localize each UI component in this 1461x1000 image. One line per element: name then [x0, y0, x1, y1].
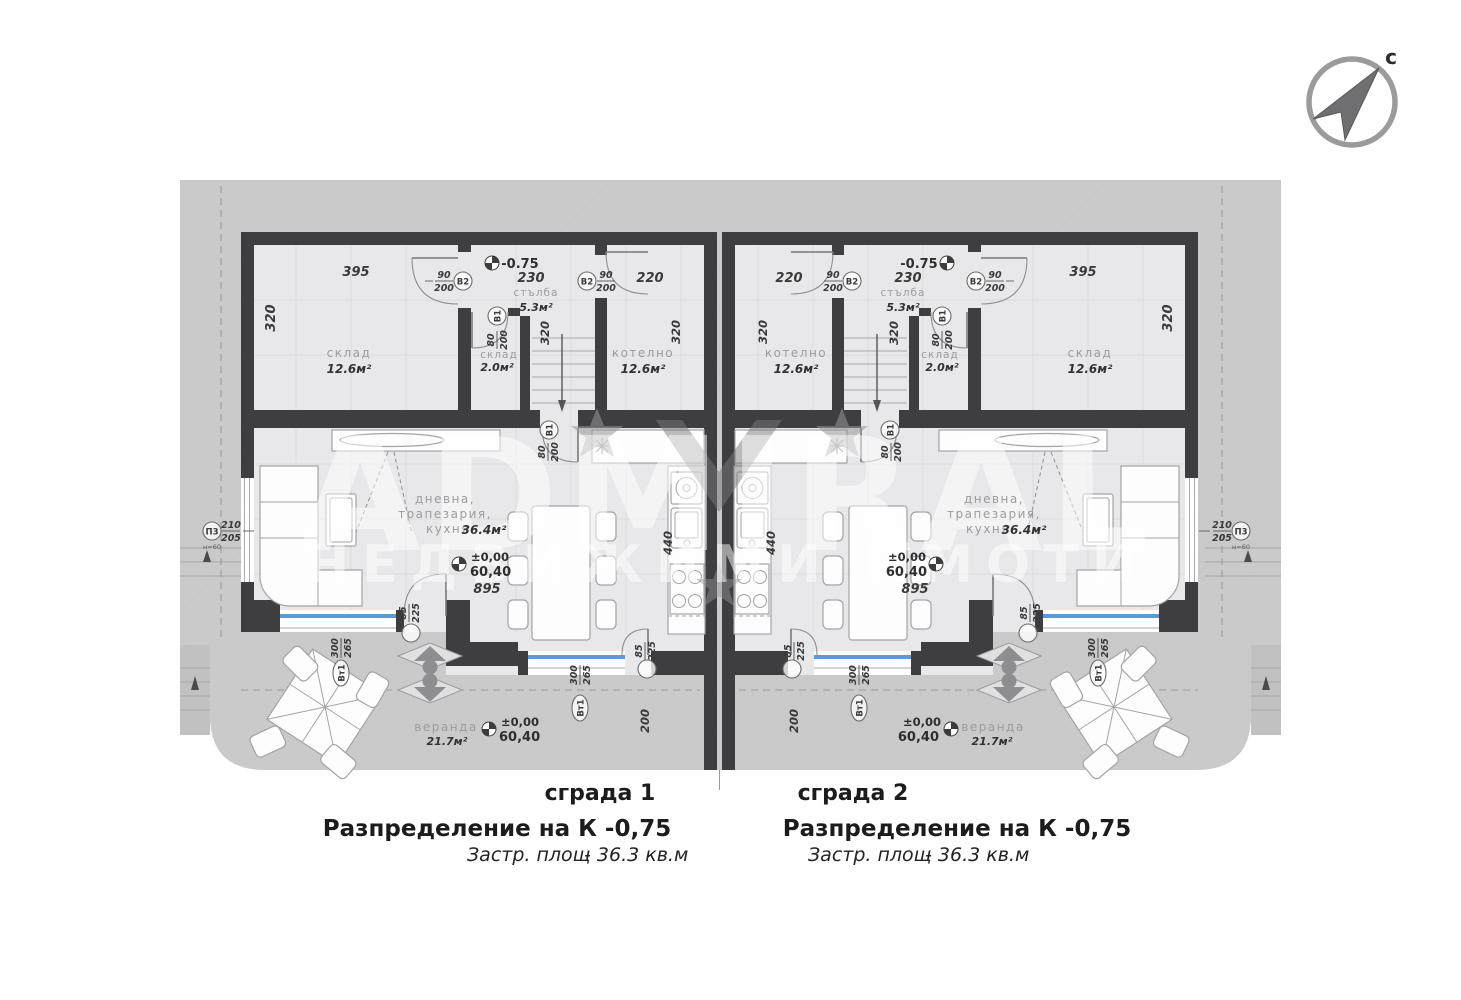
window-tag-vt1-center: Вт1 [851, 695, 867, 721]
room-boiler-name: котелно [765, 346, 827, 360]
svg-text:П3: П3 [205, 528, 218, 538]
dim-living-width: 895 [901, 582, 928, 597]
svg-text:Вт1: Вт1 [577, 699, 587, 716]
svg-text:н=60: н=60 [1232, 543, 1250, 551]
building-1-area-value: - 36.3 кв.м [584, 844, 688, 866]
room-veranda-name: веранда [414, 720, 477, 734]
plan-drawing: ADMIRAL НЕДВИЖИМИ ИМОТИ 395 320 склад 12… [0, 0, 1461, 1000]
svg-text:80: 80 [537, 445, 548, 459]
building-1-subtitle: Разпределение на К -0,75 [323, 816, 671, 842]
svg-text:225: 225 [796, 641, 807, 661]
building-1-title: сграда 1 [545, 781, 656, 806]
svg-text:200: 200 [596, 283, 616, 294]
svg-text:85: 85 [783, 644, 794, 658]
room-storage-name: склад [1068, 346, 1113, 360]
room-boiler-area: 12.6м² [621, 362, 666, 376]
svg-text:200: 200 [499, 330, 510, 350]
svg-text:265: 265 [861, 665, 872, 685]
dim-stairs-width: 230 [517, 271, 544, 286]
watermark-tagline: НЕДВИЖИМИ ИМОТИ [306, 535, 1149, 595]
room-stairs-name: стълба [881, 287, 926, 299]
plan-titles: сграда 1 Разпределение на К -0,75 Застр.… [323, 781, 1131, 866]
window-tag-vt1-right: Вт1 [1090, 660, 1106, 686]
level-mark-base: -0.75 [900, 256, 954, 272]
dim-boiler-width: 220 [636, 271, 663, 286]
room-storage-area: 12.6м² [327, 362, 372, 376]
compass-north-label: с [1385, 45, 1397, 69]
room-living-line2: трапезария, [947, 507, 1041, 521]
svg-text:В2: В2 [846, 278, 858, 288]
svg-text:60,40: 60,40 [499, 730, 540, 745]
room-living-line1: дневна, [415, 492, 475, 506]
svg-text:±0,00: ±0,00 [888, 550, 926, 564]
room-stairs-area: 5.3м² [886, 301, 919, 314]
building-1-area-label: Застр. площ [467, 844, 591, 866]
svg-text:90: 90 [599, 270, 613, 281]
svg-text:300: 300 [569, 665, 580, 685]
dim-stairs-depth: 320 [538, 321, 552, 345]
room-living-line2: трапезария, [398, 507, 492, 521]
svg-text:60,40: 60,40 [886, 565, 927, 580]
svg-text:200: 200 [823, 283, 843, 294]
dim-depth: 320 [1161, 304, 1176, 331]
north-arrow-icon [1313, 68, 1379, 140]
svg-text:85: 85 [634, 644, 645, 658]
svg-text:В2: В2 [581, 278, 593, 288]
dim-kitchen: 440 [661, 531, 675, 556]
window-tag-vt1-center: Вт1 [572, 695, 588, 721]
svg-text:н=60: н=60 [203, 543, 221, 551]
room-boiler-name: котелно [612, 346, 674, 360]
dim-kitchen: 440 [764, 531, 778, 556]
room-storage2-area: 2.0м² [925, 361, 958, 374]
svg-text:300: 300 [330, 638, 341, 658]
window-tag-vt1-left: Вт1 [333, 660, 349, 686]
svg-text:80: 80 [931, 333, 942, 347]
svg-text:90: 90 [826, 270, 840, 281]
building-2-area-label: Застр. площ [808, 844, 932, 866]
svg-text:80: 80 [486, 333, 497, 347]
svg-text:225: 225 [1032, 603, 1043, 623]
dim-boiler-depth: 320 [669, 320, 683, 344]
svg-text:60,40: 60,40 [470, 565, 511, 580]
svg-text:В1: В1 [887, 424, 897, 436]
svg-text:85: 85 [1019, 606, 1030, 620]
north-compass: с [1309, 45, 1397, 145]
dim-depth: 320 [264, 304, 279, 331]
floor-plan-sheet: ADMIRAL НЕДВИЖИМИ ИМОТИ 395 320 склад 12… [0, 0, 1461, 1000]
building-2-title: сграда 2 [798, 781, 909, 806]
svg-text:Вт1: Вт1 [1095, 664, 1105, 681]
dim-stairs-width: 230 [894, 271, 921, 286]
svg-text:265: 265 [582, 665, 593, 685]
svg-text:300: 300 [1087, 638, 1098, 658]
svg-text:200: 200 [944, 330, 955, 350]
svg-text:265: 265 [343, 638, 354, 658]
dim-storage-width: 395 [342, 265, 369, 280]
svg-text:-0.75: -0.75 [900, 257, 937, 272]
dim-stairs-depth: 320 [887, 321, 901, 345]
building-2-area-value: - 36.3 кв.м [925, 844, 1029, 866]
dim-veranda-depth: 200 [787, 709, 801, 733]
room-stairs-area: 5.3м² [519, 301, 552, 314]
svg-text:205: 205 [1212, 533, 1232, 544]
svg-text:В1: В1 [939, 310, 949, 322]
room-storage-area: 12.6м² [1068, 362, 1113, 376]
svg-text:90: 90 [988, 270, 1002, 281]
svg-text:200: 200 [550, 442, 561, 462]
dim-boiler-depth: 320 [756, 320, 770, 344]
svg-text:205: 205 [221, 533, 241, 544]
svg-text:Вт1: Вт1 [856, 699, 866, 716]
room-storage2-name: склад [480, 349, 518, 361]
svg-text:210: 210 [221, 520, 241, 531]
svg-text:В2: В2 [457, 278, 469, 288]
room-storage2-area: 2.0м² [480, 361, 513, 374]
svg-text:200: 200 [434, 283, 454, 294]
dim-veranda-depth: 200 [638, 709, 652, 733]
building-2-subtitle: Разпределение на К -0,75 [783, 816, 1131, 842]
room-boiler-area: 12.6м² [774, 362, 819, 376]
svg-text:300: 300 [848, 665, 859, 685]
svg-text:200: 200 [985, 283, 1005, 294]
room-storage2-name: склад [921, 349, 959, 361]
dim-boiler-width: 220 [775, 271, 802, 286]
room-living-area: 36.4м² [1002, 523, 1047, 537]
room-veranda-area: 21.7м² [972, 735, 1013, 748]
svg-text:П3: П3 [1234, 528, 1247, 538]
room-living-area: 36.4м² [462, 523, 507, 537]
svg-text:265: 265 [1100, 638, 1111, 658]
room-stairs-name: стълба [514, 287, 559, 299]
svg-text:60,40: 60,40 [898, 730, 939, 745]
svg-text:В1: В1 [546, 424, 556, 436]
svg-text:200: 200 [893, 442, 904, 462]
svg-text:±0,00: ±0,00 [903, 715, 941, 729]
room-veranda-name: веранда [961, 720, 1024, 734]
svg-text:225: 225 [647, 641, 658, 661]
dim-living-width: 895 [473, 582, 500, 597]
room-storage-name: склад [327, 346, 372, 360]
svg-text:-0.75: -0.75 [501, 257, 538, 272]
svg-text:В1: В1 [494, 310, 504, 322]
svg-text:±0,00: ±0,00 [471, 550, 509, 564]
level-mark-base: -0.75 [485, 256, 539, 272]
svg-text:В2: В2 [970, 278, 982, 288]
svg-text:90: 90 [437, 270, 451, 281]
svg-text:80: 80 [880, 445, 891, 459]
svg-text:225: 225 [411, 603, 422, 623]
room-living-line1: дневна, [964, 492, 1024, 506]
room-veranda-area: 21.7м² [427, 735, 468, 748]
svg-text:85: 85 [398, 606, 409, 620]
svg-text:210: 210 [1212, 520, 1232, 531]
svg-text:Вт1: Вт1 [338, 664, 348, 681]
svg-text:±0,00: ±0,00 [501, 715, 539, 729]
dim-storage-width: 395 [1069, 265, 1096, 280]
